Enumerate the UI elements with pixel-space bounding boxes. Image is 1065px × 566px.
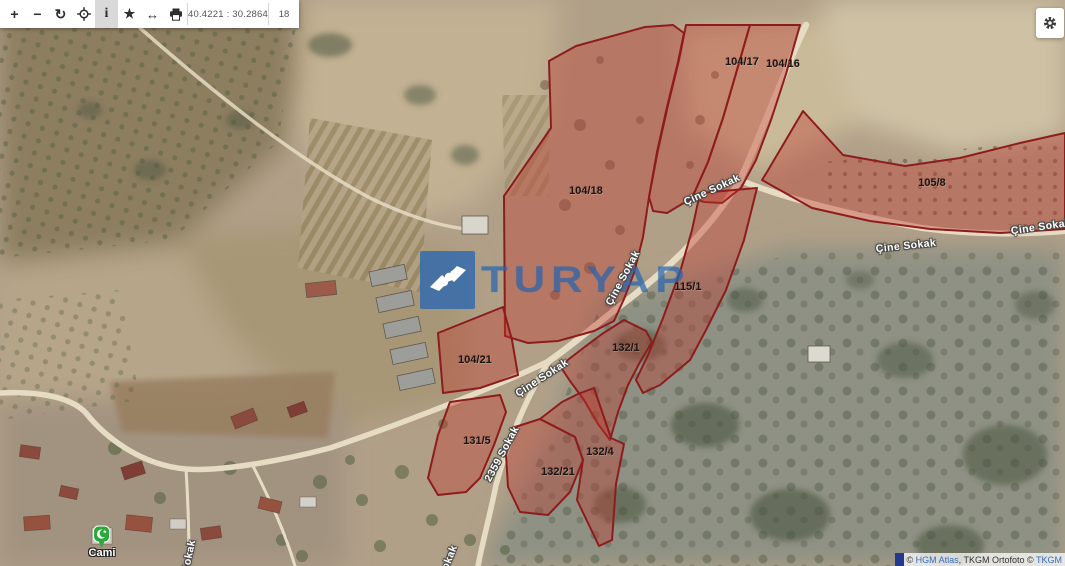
printer-icon bbox=[169, 8, 183, 21]
refresh-button[interactable]: ↻ bbox=[49, 0, 72, 28]
zoom-out-button[interactable]: − bbox=[26, 0, 49, 28]
print-button[interactable] bbox=[164, 0, 187, 28]
measure-button[interactable]: ↔ bbox=[141, 0, 164, 28]
favorites-button[interactable]: ★ bbox=[118, 0, 141, 28]
parcel-layer bbox=[0, 0, 1065, 566]
parcel-131-5[interactable] bbox=[428, 395, 506, 495]
attribution-link[interactable]: HGM Atlas bbox=[916, 555, 959, 565]
parcel-115-1[interactable] bbox=[636, 188, 757, 393]
attribution-link[interactable]: TKGM bbox=[1036, 555, 1062, 565]
star-icon: ★ bbox=[124, 6, 136, 22]
refresh-icon: ↻ bbox=[55, 6, 67, 23]
attribution-text: © HGM Atlas, TKGM Ortofoto © TKGM bbox=[907, 555, 1062, 565]
arrows-icon: ↔ bbox=[146, 7, 159, 22]
attribution-static-text: © bbox=[907, 555, 916, 565]
attribution-static-text: , TKGM Ortofoto © bbox=[959, 555, 1036, 565]
minus-icon: − bbox=[33, 6, 41, 22]
settings-button[interactable] bbox=[1036, 8, 1064, 38]
zoom-in-button[interactable]: + bbox=[3, 0, 26, 28]
crosshair-icon bbox=[77, 7, 91, 21]
map-canvas[interactable]: TURYAP 104/18104/17104/16105/8115/1132/1… bbox=[0, 0, 1065, 566]
parcel-105-8[interactable] bbox=[762, 111, 1065, 233]
info-icon: i bbox=[105, 6, 109, 22]
gear-icon bbox=[1042, 14, 1058, 32]
locate-button[interactable] bbox=[72, 0, 95, 28]
coordinates-display: 40.4221 : 30.2864 bbox=[188, 0, 268, 28]
plus-icon: + bbox=[10, 6, 18, 22]
attribution-toggle-button[interactable] bbox=[895, 553, 904, 566]
zoom-level-display: 18 bbox=[269, 0, 299, 28]
attribution-bar: © HGM Atlas, TKGM Ortofoto © TKGM bbox=[895, 553, 1065, 566]
map-toolbar: + − ↻ i ★ ↔ 40.4221 : 30.2864 18 bbox=[0, 0, 299, 28]
info-button[interactable]: i bbox=[95, 0, 118, 28]
parcel-104-21[interactable] bbox=[438, 307, 518, 393]
